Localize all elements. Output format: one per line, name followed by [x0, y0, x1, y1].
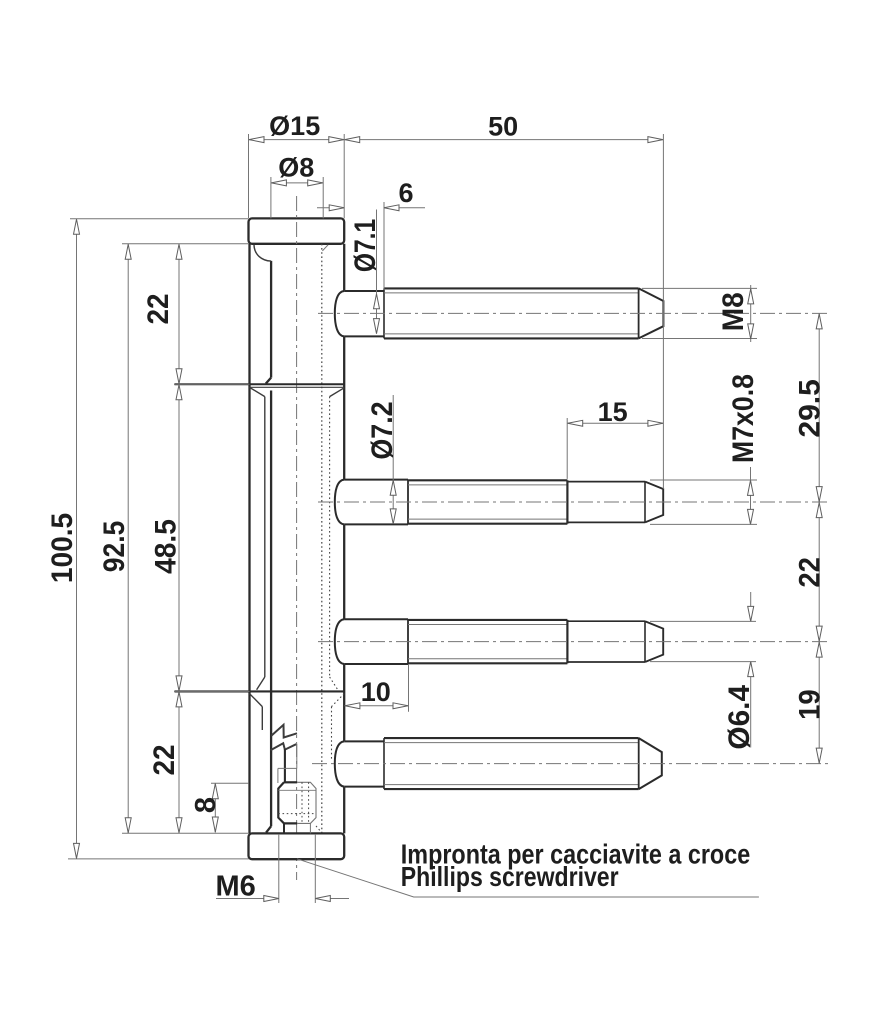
svg-text:19: 19 — [794, 689, 827, 720]
svg-text:92.5: 92.5 — [98, 521, 131, 573]
svg-text:Ø15: Ø15 — [269, 111, 320, 141]
svg-text:Ø8: Ø8 — [278, 152, 314, 182]
svg-text:100.5: 100.5 — [46, 513, 79, 583]
svg-text:M8: M8 — [717, 292, 750, 331]
svg-text:8: 8 — [190, 797, 222, 813]
svg-text:29.5: 29.5 — [794, 379, 827, 438]
svg-text:10: 10 — [361, 677, 391, 707]
svg-text:22: 22 — [148, 745, 181, 776]
svg-text:6: 6 — [398, 178, 413, 208]
svg-text:M7x0.8: M7x0.8 — [727, 374, 760, 463]
svg-text:22: 22 — [142, 294, 175, 325]
svg-text:Ø6.4: Ø6.4 — [723, 685, 756, 750]
svg-text:Phillips screwdriver: Phillips screwdriver — [401, 861, 619, 892]
svg-text:48.5: 48.5 — [149, 519, 182, 574]
svg-text:Ø7.2: Ø7.2 — [366, 401, 399, 459]
svg-text:M6: M6 — [215, 870, 255, 902]
svg-text:Ø7.1: Ø7.1 — [349, 219, 382, 272]
svg-text:50: 50 — [488, 112, 518, 142]
svg-text:22: 22 — [794, 557, 827, 588]
svg-text:15: 15 — [598, 397, 628, 427]
